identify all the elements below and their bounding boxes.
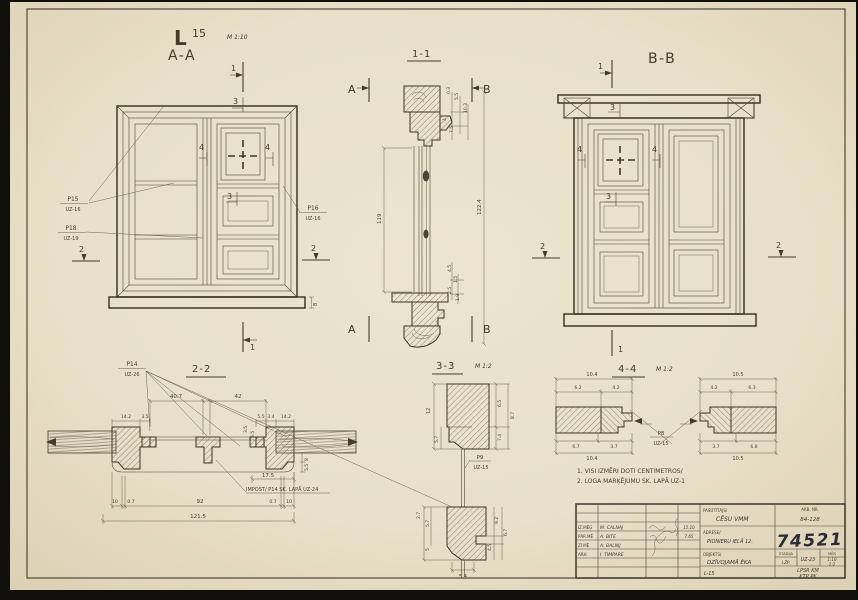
role-label: IZ.MĒĢ <box>578 525 592 530</box>
dim-label: 4.2 <box>710 385 717 391</box>
date: 7.65 <box>685 534 694 539</box>
dim-label: 3.7 <box>610 444 617 450</box>
dim-label: 6.5 <box>497 400 503 407</box>
section-mark-1: 1 <box>618 345 623 354</box>
section-mark-4: 4 <box>652 145 657 154</box>
view-title-4-4: 4-4 <box>618 364 637 375</box>
address-label: ADRESE/ <box>703 530 721 535</box>
section-mark-1: 1 <box>231 64 236 73</box>
object-value: DZĪVOJAMĀ ĒKA <box>707 559 751 566</box>
dim-label: 5.4 <box>459 574 467 580</box>
section-mark-2: 2 <box>540 242 545 251</box>
dim-label: 5.5 <box>257 414 264 420</box>
dim-label: 0.3 <box>446 87 452 94</box>
section-mark-3: 3 <box>227 192 232 201</box>
sheet-ref: UZ-23 <box>800 557 815 563</box>
dim-label: 10.3 <box>463 103 469 113</box>
note-line-2: 2. LOGA MARĶĒJUMU SK. LAPĀ UZ-1 <box>577 478 685 485</box>
wall-section-left <box>48 431 116 453</box>
impost-note: IMPOST/ P14 SK. LAPĀ UZ-24 <box>246 486 318 493</box>
mullion-lower-profile <box>447 507 486 560</box>
dim-label: 119 <box>377 213 383 224</box>
dim-label: 6.2 <box>574 385 581 391</box>
dim-label: 2.7 <box>416 512 422 519</box>
dim-label: 8.7 <box>510 412 516 419</box>
hinge-hardware <box>423 171 429 182</box>
section-mark-3: 3 <box>606 192 611 201</box>
view-title-2-2: 2-2 <box>192 364 211 375</box>
callout-ref: UZ-16 <box>305 216 320 222</box>
scale-value-2: 1:2 <box>829 562 836 567</box>
role-label: PĀR.MĒ <box>578 534 594 539</box>
dim-label: 1.9 <box>455 294 461 301</box>
stage-label: STADIJA <box>779 552 793 556</box>
section-mark-2: 2 <box>311 244 316 253</box>
view-title-aa: A-A <box>168 48 196 64</box>
dim-label: 6.7 <box>503 529 509 536</box>
dim-label: 122.4 <box>477 199 483 215</box>
role-label: ZĪ.MĒ <box>578 543 590 548</box>
view-title-1-1: 1-1 <box>412 49 431 60</box>
dim-label: 10 <box>286 499 292 505</box>
dim-label: 1.5 <box>453 276 459 283</box>
detail-scale: M 1:2 <box>475 363 492 370</box>
dim-label: 5.5 <box>250 431 256 438</box>
dim-label: 8 <box>304 458 310 461</box>
section-mark-1: 1 <box>250 343 255 352</box>
callout-code: P18 <box>65 225 76 232</box>
dim-label: 5.5 <box>304 464 310 471</box>
date: 15.10 <box>683 525 695 530</box>
view-title-bb: B-B <box>648 51 676 67</box>
dim-label: 14.2 <box>281 414 291 420</box>
person-name: A. BALNIJ <box>599 543 621 549</box>
client-label: PASŪTĪTĀJS/ <box>703 508 728 513</box>
person-name: A. BITE <box>599 534 616 540</box>
dim-label: 5.7 <box>434 436 440 443</box>
sheet-scale: M 1:10 <box>227 34 248 41</box>
detail-scale: M 1:2 <box>656 366 673 373</box>
object-label: OBJEKTS/ <box>703 552 722 557</box>
callout-ref: UZ-16 <box>65 207 80 213</box>
section-mark-3: 3 <box>233 97 238 106</box>
dim-label: 42 <box>235 394 242 400</box>
callout-ref: UZ-15 <box>653 441 668 447</box>
dim-label: 4 <box>442 118 448 121</box>
view-title-3-3: 3-3 <box>436 361 455 372</box>
section-letter-A: A <box>348 323 356 336</box>
callout-code: P15 <box>67 196 78 203</box>
dim-label: 8 <box>313 303 319 306</box>
dim-label: 9.2 <box>494 517 500 524</box>
dim-label: 4.5 <box>447 265 453 272</box>
sheet-code-letter: L <box>174 26 187 50</box>
dim-label: 40.7 <box>170 394 183 400</box>
dim-label: 5.7 <box>425 520 431 527</box>
dim-label: 6.3 <box>748 385 755 391</box>
dim-label: 12 <box>426 408 432 414</box>
person-name: M. CALNAJ <box>600 525 624 531</box>
window-board-profile <box>392 293 448 302</box>
sash-stile-left <box>142 437 156 447</box>
section-mark-2: 2 <box>776 241 781 250</box>
section-mark-1: 1 <box>598 62 603 71</box>
dim-label: 6.7 <box>572 444 579 450</box>
dim-label: 0.7 <box>127 499 134 505</box>
scale-label: MĒR <box>828 551 836 556</box>
section-mark-4: 4 <box>265 143 270 152</box>
callout-ref: UZ-19 <box>63 236 78 242</box>
callout-ref: UZ-26 <box>124 372 139 378</box>
dim-label: 10.4 <box>586 372 597 378</box>
dim-label: 10.5 <box>732 372 743 378</box>
dim-label: 10.4 <box>586 456 597 462</box>
dim-label: 17.5 <box>262 473 275 479</box>
job-label: ARB. NR. <box>801 507 819 512</box>
callout-code: P9 <box>477 455 484 461</box>
section-letter-A: A <box>348 83 356 96</box>
dim-label: 4 <box>436 319 439 325</box>
dim-label: 5.5 <box>454 93 460 100</box>
frame-piece <box>731 407 776 433</box>
dim-label: 121.5 <box>190 514 206 520</box>
dim-label: 3.7 <box>712 444 719 450</box>
dim-label: 5 <box>425 548 431 551</box>
dim-label: 3.4 <box>267 414 274 420</box>
section-mark-3: 3 <box>610 103 615 112</box>
dim-label: 7.4 <box>497 434 503 441</box>
hinge-hardware <box>423 230 428 239</box>
org-line-2: KTP PK <box>799 574 817 580</box>
section-mark-2: 2 <box>79 245 84 254</box>
callout-code: P8 <box>658 431 665 437</box>
dim-label: 4.5 <box>487 544 493 551</box>
address-value: PIONIERU IELĀ 12. <box>707 538 753 545</box>
stage-value: I.ZP. <box>782 560 790 565</box>
sheet-number: L-15 <box>704 571 715 577</box>
dim-label: 14.2 <box>121 414 131 420</box>
dim-label: 6.8 <box>750 444 757 450</box>
section-mark-4: 4 <box>199 143 204 152</box>
drawing-number: 74521 <box>776 530 843 552</box>
callout-code: P16 <box>307 205 318 212</box>
dim-label: 2.5 <box>447 287 453 294</box>
dim-label: 3.5 <box>243 426 249 433</box>
blueprint-canvas: L 15 M 1:10 A-A 8 1 1 2 2 3 3 4 4 P15 UZ… <box>0 0 858 600</box>
client-value: CĒSU VMM <box>716 516 749 523</box>
dim-label: 3.5 <box>141 414 148 420</box>
callout-ref: UZ-15 <box>473 465 488 471</box>
frame-piece <box>556 407 601 433</box>
dim-label: 92 <box>197 499 204 505</box>
dim-label: 10 <box>112 499 118 505</box>
job-number: 84-128 <box>800 517 820 523</box>
note-line-1: 1. VISI IZMĒRI DOTI CENTIMETROS/ <box>577 468 684 475</box>
drawing-sheet: L 15 M 1:10 A-A 8 1 1 2 2 3 3 4 4 P15 UZ… <box>0 0 858 600</box>
sheet-code-index: 15 <box>192 27 206 40</box>
mullion-upper-profile <box>447 384 489 449</box>
role-label: ARH. <box>578 552 588 557</box>
dim-label: 10.5 <box>732 456 743 462</box>
person-name: I. TIMPARE <box>600 552 624 558</box>
dim-label: 7.5 <box>449 126 455 133</box>
section-mark-4: 4 <box>577 145 582 154</box>
dim-label: 4.2 <box>612 385 619 391</box>
callout-code: P14 <box>126 361 137 368</box>
dim-label: 0.7 <box>269 499 276 505</box>
